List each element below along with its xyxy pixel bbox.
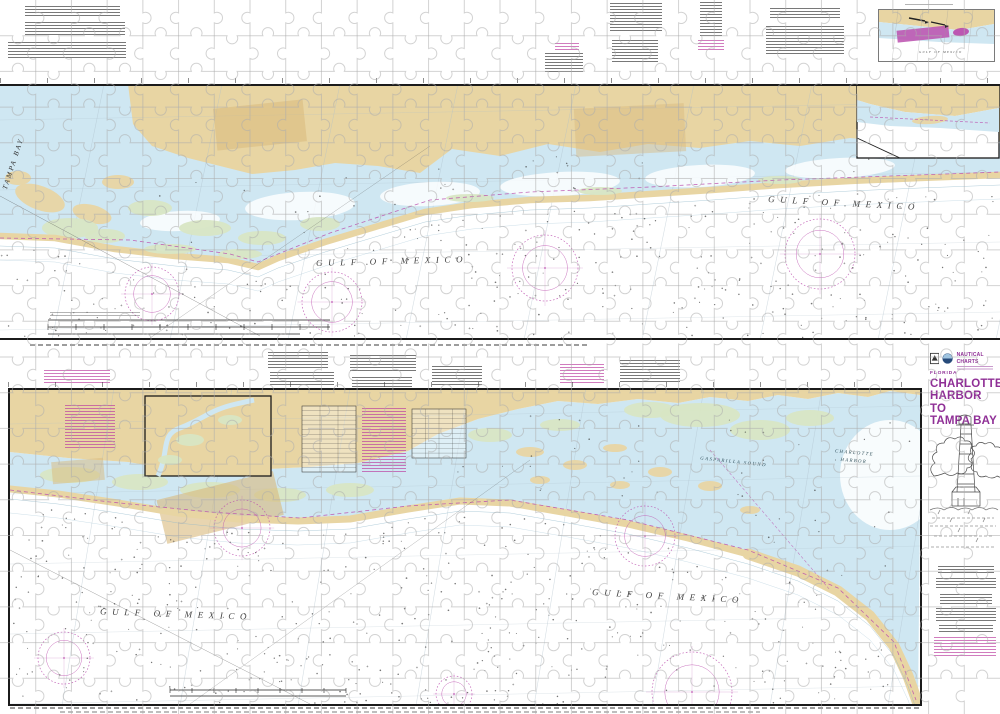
inset-caption: [905, 4, 953, 7]
caution-note: [934, 637, 996, 657]
land-note: [362, 408, 406, 472]
lower-chart-art: [10, 390, 920, 704]
note-block: [936, 578, 996, 590]
bottom-notes-strip: [60, 711, 760, 713]
agency-brand-row: NAUTICAL CHARTS: [930, 352, 1000, 370]
chart-title-line2: HARBOR TO: [930, 390, 1000, 415]
note-block: [25, 22, 125, 36]
note-block: [25, 6, 120, 18]
brand-label: NAUTICAL CHARTS: [957, 352, 1000, 365]
chart-panel-upper: [0, 84, 1000, 340]
note-block: [268, 352, 328, 368]
caution-note: [698, 40, 724, 50]
note-block: [350, 355, 416, 373]
caution-note: [555, 43, 579, 51]
note-block: [8, 42, 126, 58]
note-block: [939, 625, 993, 633]
border-ticks: [8, 382, 922, 387]
note-block: [620, 360, 680, 382]
note-block: [610, 3, 662, 33]
note-block: [936, 608, 996, 621]
state-label: FLORIDA: [930, 371, 957, 376]
note-block: [938, 566, 994, 574]
agency-brand-text: NAUTICAL CHARTS: [957, 352, 1000, 370]
note-block: [700, 2, 722, 36]
upper-chart-art: [0, 86, 1000, 338]
chart-title-line1: CHARLOTTE: [930, 378, 1000, 390]
index-inset-map: GULF OF MEXICO: [878, 9, 995, 62]
note-block: [766, 26, 844, 56]
note-block: [770, 8, 840, 20]
caution-note: [560, 364, 604, 384]
land-note: [65, 405, 115, 449]
noaa-logo-icon: [942, 352, 953, 365]
brand-subline: [957, 366, 993, 370]
note-block: [940, 594, 992, 604]
border-ticks: [0, 78, 1000, 83]
note-block: [612, 40, 658, 62]
note-block: [545, 53, 583, 73]
agency-flag-icon: [930, 352, 939, 365]
scale-caption: [50, 312, 140, 316]
inset-gulf-label: GULF OF MEXICO: [919, 50, 963, 54]
chart-panel-lower: [8, 388, 922, 706]
margin-notes-strip: [30, 344, 590, 346]
lighthouse-illustration: [928, 414, 1000, 564]
puzzle-nautical-chart: GULF OF MEXICO TAMPA BAY GULF OF MEXICO …: [0, 0, 1000, 714]
bottom-notes-strip: [10, 707, 922, 709]
